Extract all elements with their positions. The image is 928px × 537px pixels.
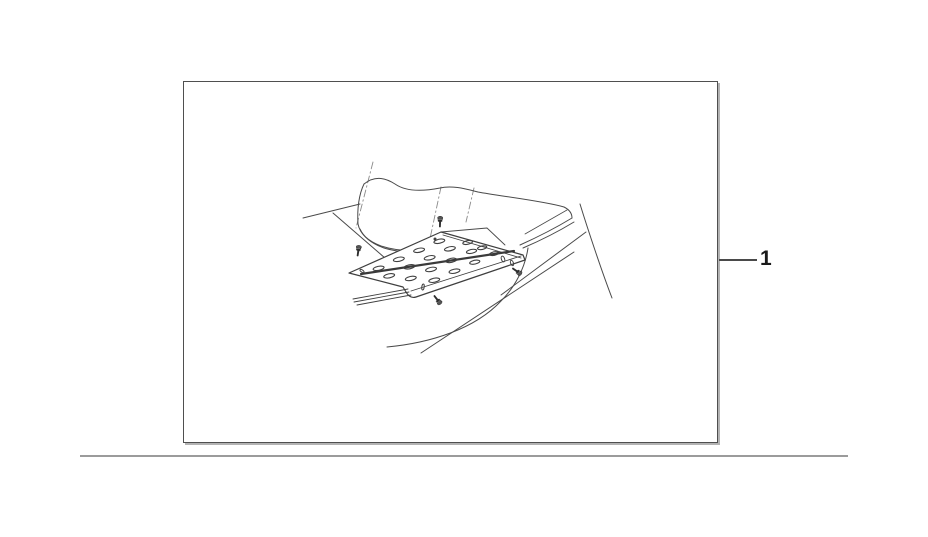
callout-leader-line	[719, 259, 757, 261]
part-illustration	[184, 82, 717, 442]
footer-rule	[80, 455, 848, 457]
step-plate-outline	[349, 232, 525, 297]
center-lines	[356, 162, 474, 248]
page: 1	[0, 0, 928, 537]
screw-icon-bottom	[432, 294, 443, 306]
screw-icon-right	[511, 266, 523, 277]
screw-icon-top	[437, 216, 443, 227]
callout-label[interactable]: 1	[760, 248, 772, 269]
diagram-box	[183, 81, 718, 443]
screw-icon-left	[355, 245, 362, 257]
